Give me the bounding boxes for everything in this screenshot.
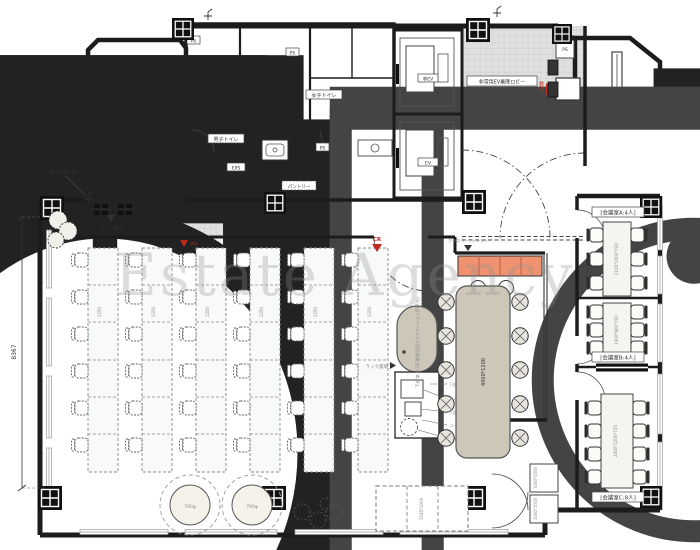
storage-size: 1545*1000 <box>419 497 424 520</box>
meeting-b-name: [会議室B:4人] <box>600 354 635 362</box>
meeting-c-table-size: 2800*1200*720 <box>613 425 618 457</box>
floor-plan: 屋外避難階段 屋外避難階段 男子トイレ 女子トイレ PS PS PS EPS パ… <box>0 0 700 550</box>
pantry-label: パントリー <box>288 184 311 190</box>
water-tap-label: 散水栓(量水器共) <box>50 168 82 174</box>
rescue-label: 救助 <box>538 80 544 92</box>
round-table-size: 700φ <box>184 504 196 510</box>
rack-storage-label: ラック置場 <box>366 363 389 370</box>
mop-sink <box>262 140 288 160</box>
benchmark-icons <box>204 6 501 20</box>
deck-storage: 1545*1000 <box>376 486 468 531</box>
meeting-c-name: [会議室C:8人] <box>600 494 636 502</box>
ev-emergency-label: 非EV <box>423 76 434 83</box>
lobby-equipment <box>548 82 558 97</box>
meeting-a-table-size: 2100*1000*720 <box>614 243 619 275</box>
mens-toilet-label: 男子トイレ <box>213 136 238 143</box>
ps-label: PS <box>562 47 568 53</box>
ev-lobby-label: 非常用EV乗降ロビー <box>479 79 526 86</box>
ev-label: EV <box>425 161 432 167</box>
round-table-size: 700φ <box>246 504 258 510</box>
locker-size: 1000*1000 <box>533 466 538 489</box>
lobby-equipment <box>548 60 558 75</box>
meeting-b-table-size: 1900*900*720 <box>614 315 619 345</box>
dimension-label: 8367 <box>11 344 18 359</box>
watermark: Estate Agency <box>114 241 575 309</box>
big-table-size: 4000*1200 <box>481 358 487 386</box>
eps-label: EPS <box>232 166 241 172</box>
faucet-icon <box>402 350 406 354</box>
counter-note: 下部:扉 各TEL置場(回収ゴミステーション/PET/缶) <box>414 296 420 387</box>
desk-size-label: 1250 <box>97 306 102 317</box>
ps-label: PS <box>320 146 326 152</box>
pantry-counter <box>358 140 392 156</box>
coat-rack-label: コート掛け <box>99 225 124 232</box>
ps-label: PS <box>290 51 296 57</box>
womens-toilet-label: 女子トイレ <box>311 92 336 99</box>
ev-car-1 <box>406 46 434 92</box>
meeting-room-b: 1900*900*720 [会議室B:4人] <box>587 303 648 362</box>
locker-size: 1000*1000 <box>533 497 538 520</box>
meeting-a-name: [会議室A:4人] <box>600 209 635 217</box>
ev-car-2 <box>406 130 434 176</box>
water-server-icon <box>401 419 418 436</box>
floor-plan-page: 屋外避難階段 屋外避難階段 男子トイレ 女子トイレ PS PS PS EPS パ… <box>0 0 700 550</box>
coffee-maker-icon <box>405 402 421 416</box>
